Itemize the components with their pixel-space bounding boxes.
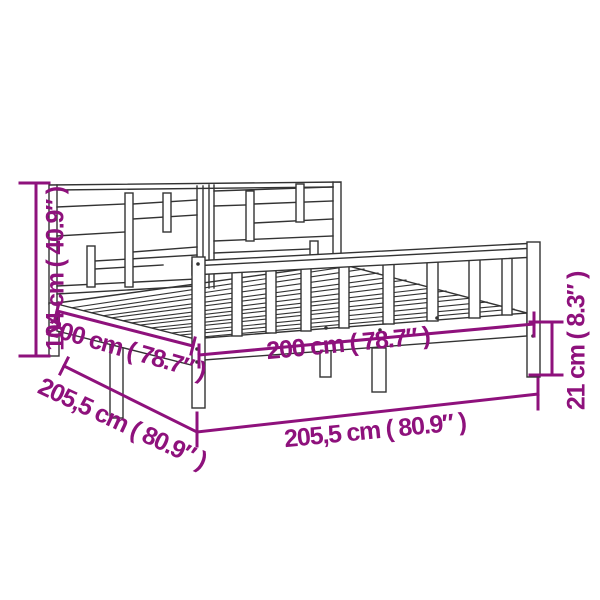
spindle — [266, 270, 276, 333]
bed-frame-drawing — [0, 0, 600, 600]
spindle — [301, 268, 311, 331]
spindle — [469, 259, 480, 318]
front-right-post — [527, 242, 540, 377]
dim-label-rail-height: 21 cm ( 8.3″ ) — [563, 272, 592, 410]
spindle — [427, 261, 438, 321]
spindle — [339, 266, 349, 328]
dimension-diagram: 104 cm ( 40.9″ ) 200 cm ( 78.7″ ) 205,5 … — [0, 0, 600, 600]
spindle — [502, 257, 512, 315]
spindle — [232, 272, 242, 336]
spindle — [383, 264, 394, 324]
